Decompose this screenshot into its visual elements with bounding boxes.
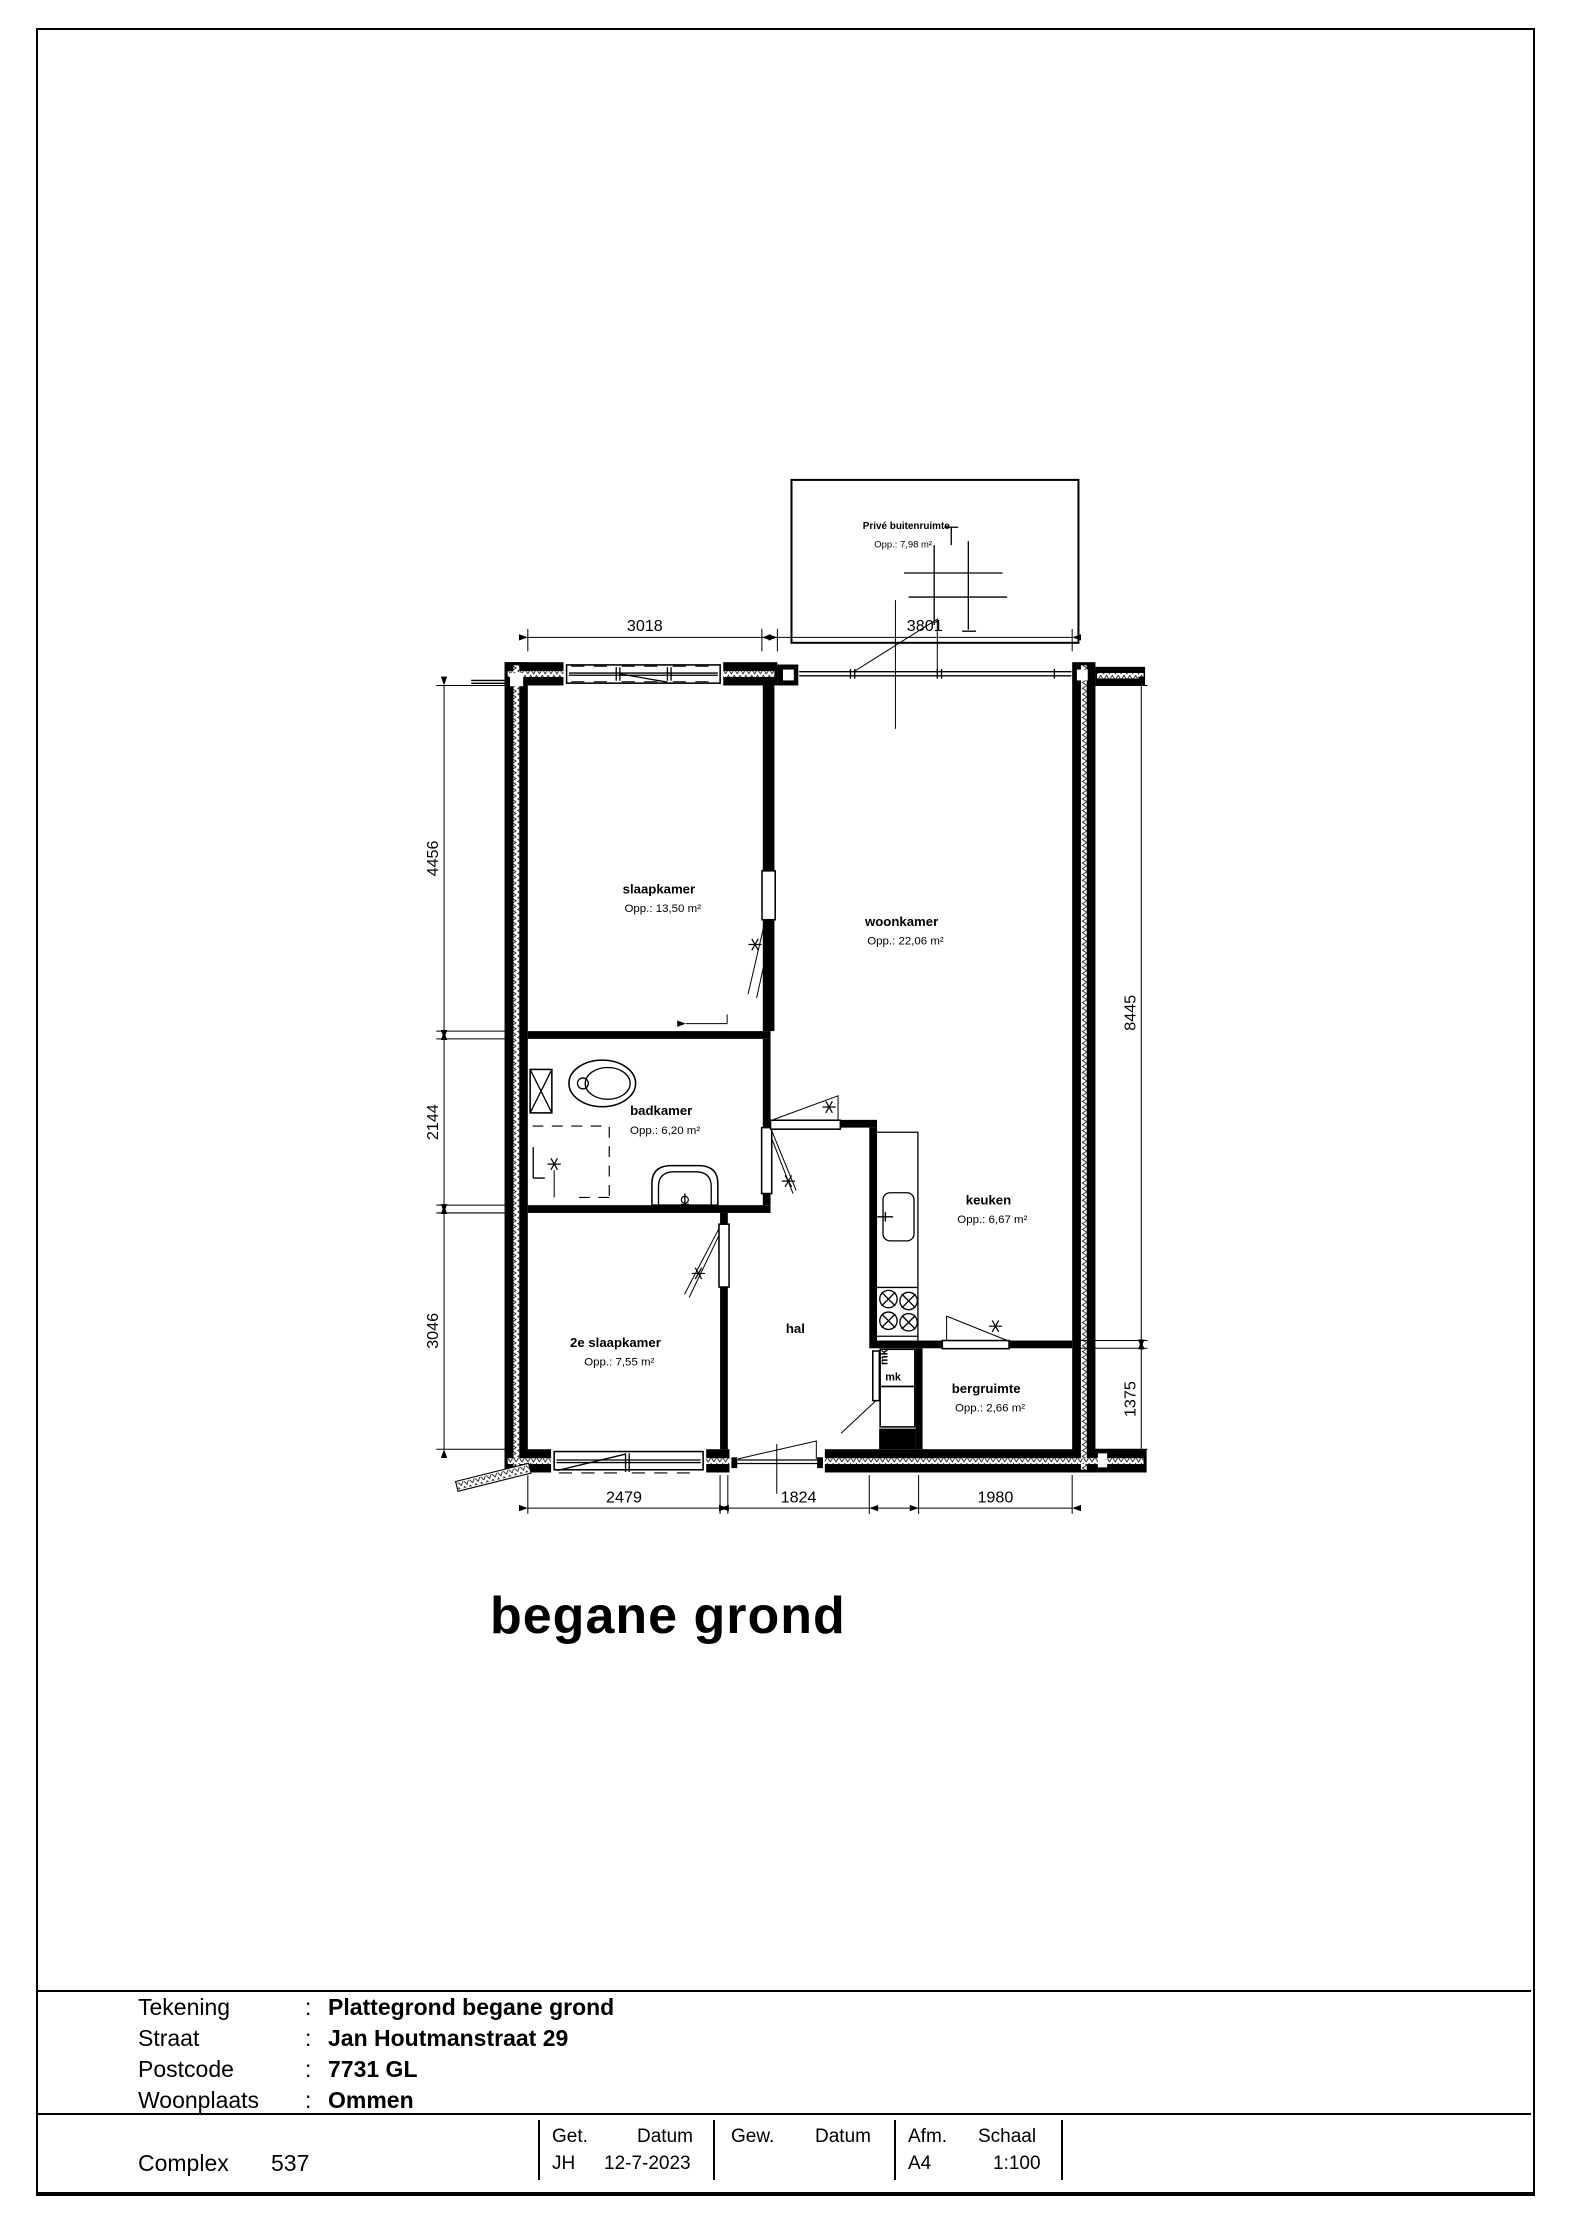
field-sep: : <box>305 1994 311 2021</box>
dim-left-2: 2144 <box>427 1104 442 1140</box>
meta-datum1-value: 12-7-2023 <box>604 2153 691 2175</box>
room-label-2e-slaapkamer: 2e slaapkamer <box>570 1335 661 1350</box>
title-block-bar-4 <box>1061 2120 1063 2180</box>
outdoor-area: Opp.: 7,98 m² <box>874 539 932 550</box>
meta-get-value: JH <box>552 2153 575 2175</box>
interior-doors <box>684 871 1009 1433</box>
field-label-straat: Straat <box>138 2025 199 2052</box>
meta-get-label: Get. <box>552 2126 588 2148</box>
room-area-bergruimte: Opp.: 2,66 m² <box>955 1403 1025 1415</box>
sheet-border-bottom <box>36 2192 1535 2195</box>
room-area-slaapkamer: Opp.: 13,50 m² <box>625 903 702 915</box>
field-label-postcode: Postcode <box>138 2056 234 2083</box>
field-sep: : <box>305 2087 311 2114</box>
shower-area <box>532 1126 609 1197</box>
meta-datum1-label: Datum <box>637 2126 693 2148</box>
dim-bottom-1: 2479 <box>606 1488 642 1506</box>
complex-value: 537 <box>271 2150 309 2177</box>
field-value-straat: Jan Houtmanstraat 29 <box>328 2025 568 2052</box>
front-door <box>729 1441 824 1494</box>
meta-datum2-label: Datum <box>815 2126 871 2148</box>
field-value-woonplaats: Ommen <box>328 2087 414 2114</box>
title-block-bar-3 <box>894 2120 896 2180</box>
room-area-2e-slaapkamer: Opp.: 7,55 m² <box>584 1357 654 1369</box>
closet-label-mk: mk <box>885 1371 902 1383</box>
meta-schaal-value: 1:100 <box>993 2153 1041 2175</box>
room-area-keuken: Opp.: 6,67 m² <box>957 1214 1027 1226</box>
window-slaapkamer <box>563 661 723 688</box>
room-label-hal: hal <box>786 1321 805 1336</box>
slide-direction-arrow <box>686 1014 727 1023</box>
floor-plan-drawing: Privé buitenruimte Opp.: 7,98 m² slaapka… <box>427 445 1156 1562</box>
complex-label: Complex <box>138 2150 229 2177</box>
floor-plan: Privé buitenruimte Opp.: 7,98 m² slaapka… <box>427 445 1156 1562</box>
bathroom-fixtures <box>530 1014 727 1205</box>
field-value-postcode: 7731 GL <box>328 2056 418 2083</box>
dim-top-1: 3018 <box>627 617 663 635</box>
room-label-bergruimte: bergruimte <box>952 1381 1021 1396</box>
field-label-tekening: Tekening <box>138 1994 230 2021</box>
title-block-bar-2 <box>713 2120 715 2180</box>
wall-insulation-hatch <box>456 665 1144 1491</box>
closet-label-mk-rotated: mk <box>879 1348 891 1365</box>
field-value-tekening: Plattegrond begane grond <box>328 1994 614 2021</box>
drawing-sheet: Privé buitenruimte Opp.: 7,98 m² slaapka… <box>0 0 1571 2224</box>
dim-left-1: 4456 <box>427 840 442 876</box>
dim-top-2: 3801 <box>907 617 943 635</box>
room-area-woonkamer: Opp.: 22,06 m² <box>867 936 944 948</box>
kitchen-fixtures <box>877 1132 918 1340</box>
dim-right-2: 1375 <box>1121 1381 1139 1417</box>
stove-burners-icon <box>880 1290 918 1331</box>
drawing-title: begane grond <box>490 1586 846 1646</box>
outdoor-label: Privé buitenruimte <box>863 521 950 532</box>
title-block-divider-1 <box>38 1990 1531 1992</box>
window-2e-slaapkamer <box>551 1448 706 1474</box>
meta-afm-value: A4 <box>908 2153 931 2175</box>
party-wall-stub <box>456 1463 531 1491</box>
meta-gew-label: Gew. <box>731 2126 774 2148</box>
dim-bottom-3: 1980 <box>977 1488 1013 1506</box>
dim-right-1: 8445 <box>1121 995 1139 1031</box>
washbasin-icon <box>652 1166 718 1206</box>
field-sep: : <box>305 2025 311 2052</box>
room-label-keuken: keuken <box>966 1192 1011 1207</box>
field-label-woonplaats: Woonplaats <box>138 2087 259 2114</box>
meta-afm-label: Afm. <box>908 2126 947 2148</box>
room-label-woonkamer: woonkamer <box>864 914 938 929</box>
dim-bottom-2: 1824 <box>781 1488 817 1506</box>
title-block-bar-1 <box>538 2120 540 2180</box>
room-label-slaapkamer: slaapkamer <box>623 881 695 896</box>
dim-left-3: 3046 <box>427 1313 442 1349</box>
field-sep: : <box>305 2056 311 2083</box>
room-label-badkamer: badkamer <box>630 1103 692 1118</box>
meta-schaal-label: Schaal <box>978 2126 1036 2148</box>
room-area-badkamer: Opp.: 6,20 m² <box>630 1125 700 1137</box>
toilet-icon <box>569 1060 636 1107</box>
title-block-divider-2 <box>38 2113 1531 2115</box>
